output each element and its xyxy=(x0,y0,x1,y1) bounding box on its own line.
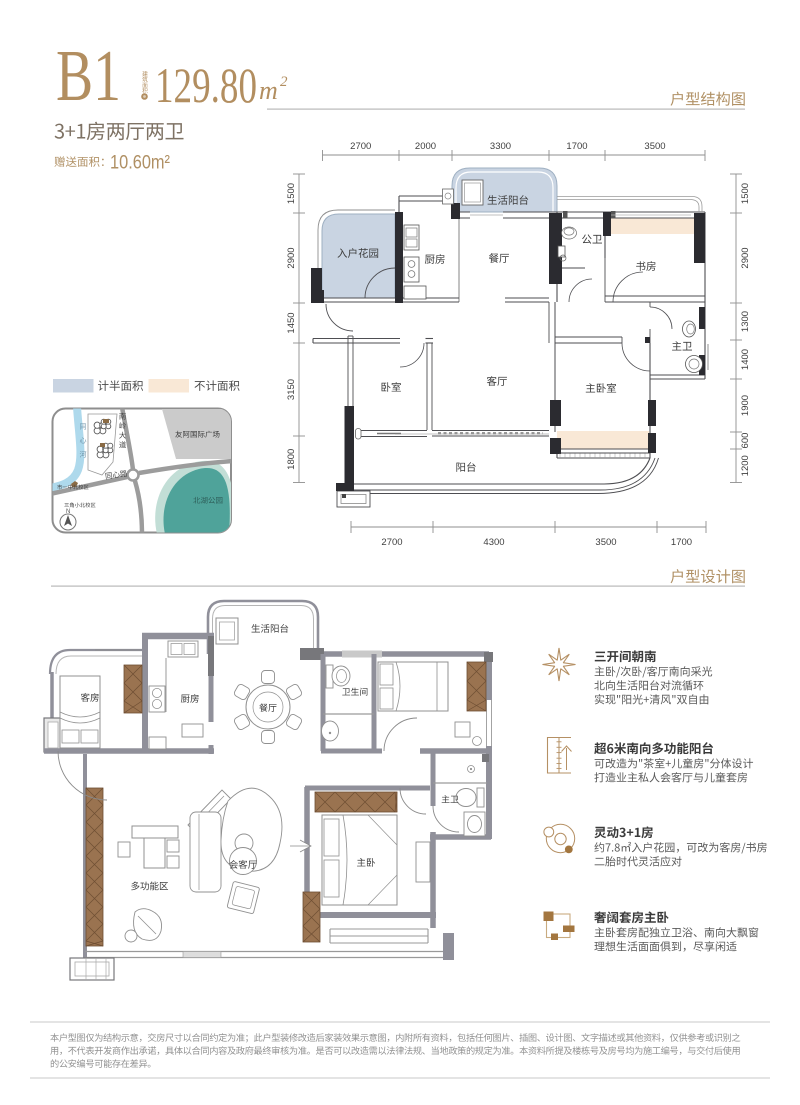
svg-text:1800: 1800 xyxy=(286,449,297,470)
svg-text:3150: 3150 xyxy=(286,379,297,400)
svg-text:129.80: 129.80 xyxy=(155,57,257,113)
svg-text:1300: 1300 xyxy=(740,311,751,332)
svg-text:1500: 1500 xyxy=(286,183,297,204)
svg-text:2700: 2700 xyxy=(381,537,402,548)
svg-text:1200: 1200 xyxy=(740,455,751,476)
svg-text:4300: 4300 xyxy=(483,537,504,548)
svg-text:3300: 3300 xyxy=(490,141,511,152)
svg-text:2000: 2000 xyxy=(415,141,436,152)
svg-text:N: N xyxy=(66,509,70,515)
svg-text:2900: 2900 xyxy=(740,247,751,268)
svg-text:1450: 1450 xyxy=(286,312,297,333)
svg-text:2700: 2700 xyxy=(350,141,371,152)
svg-text:1700: 1700 xyxy=(566,141,587,152)
svg-text:2: 2 xyxy=(280,74,288,90)
svg-text:1900: 1900 xyxy=(740,395,751,416)
svg-text:B1: B1 xyxy=(56,35,121,116)
svg-text:10.60m²: 10.60m² xyxy=(110,152,170,174)
svg-text:600: 600 xyxy=(740,433,751,449)
svg-text:2900: 2900 xyxy=(286,247,297,268)
svg-text:1400: 1400 xyxy=(740,349,751,370)
svg-text:m: m xyxy=(259,76,278,105)
svg-text:3500: 3500 xyxy=(644,141,665,152)
svg-text:1500: 1500 xyxy=(740,183,751,204)
svg-text:3500: 3500 xyxy=(595,537,616,548)
svg-text:1700: 1700 xyxy=(671,537,692,548)
